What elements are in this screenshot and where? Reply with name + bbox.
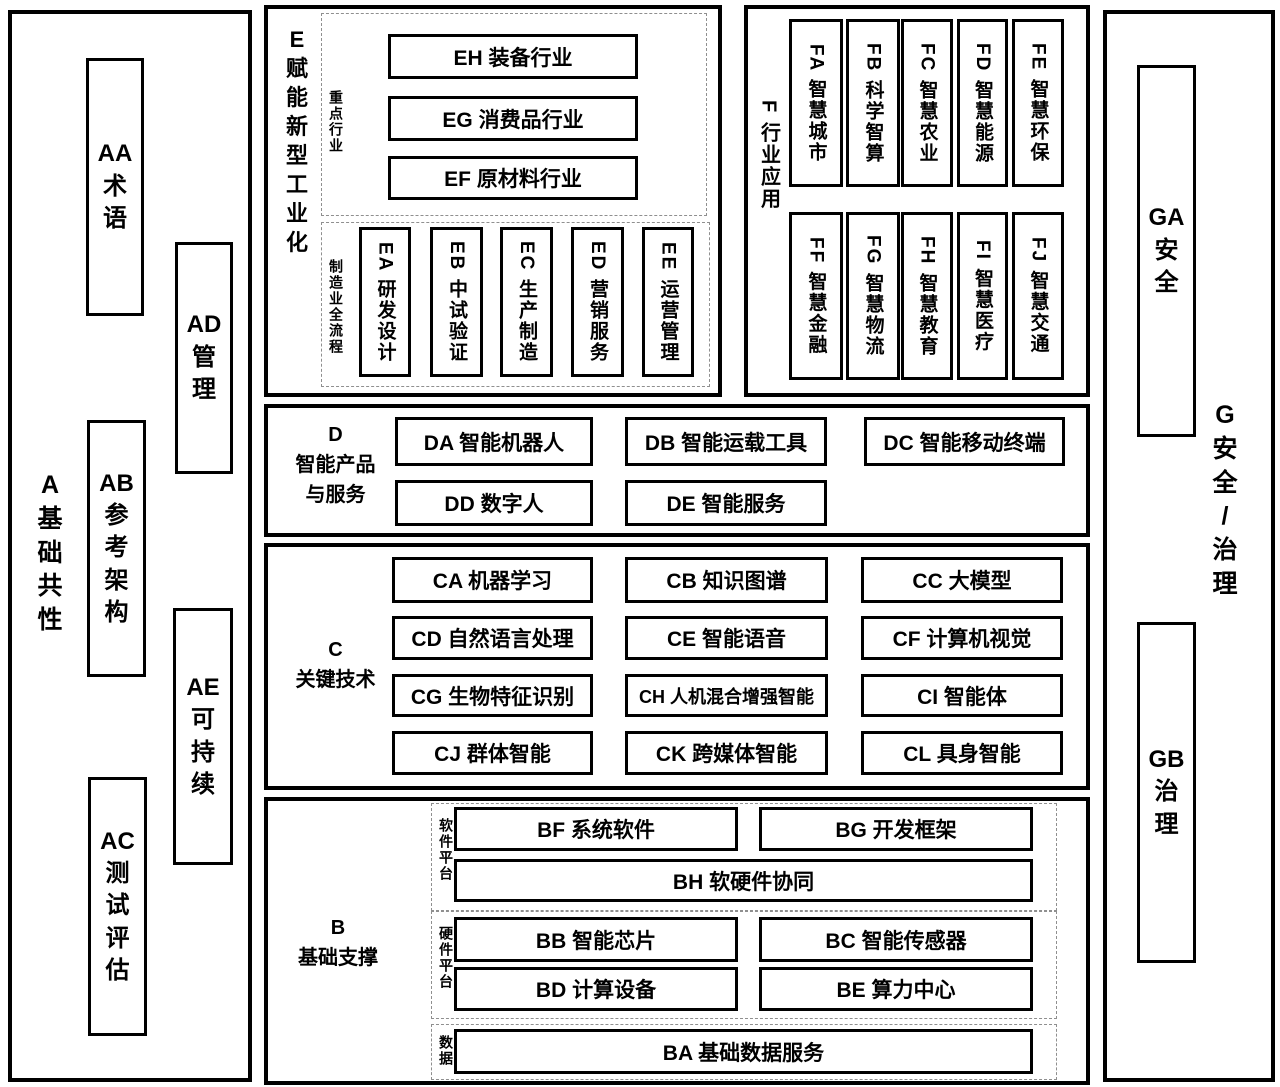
box-ee-operations-management: EE 运营管理 [642, 227, 694, 377]
box-bb-intelligent-chip: BB 智能芯片 [454, 917, 738, 962]
section-a-label: A 基 础 共 性 [20, 469, 80, 638]
group-software-platform: 软件平台 BF 系统软件 BG 开发框架 BH 软硬件协同 [431, 803, 1057, 911]
box-eg-consumer-goods-industry: EG 消费品行业 [388, 96, 638, 141]
box-gb-governance: GB 治 理 [1137, 622, 1196, 963]
section-f-label: F 行业应用 [755, 100, 783, 300]
box-cl-embodied-intelligence: CL 具身智能 [861, 731, 1063, 775]
section-a-basic-common: A 基 础 共 性 AA 术 语 AD 管 理 AB 参 考 架 构 AE 可 … [8, 10, 252, 1082]
box-bh-software-hardware-collaboration: BH 软硬件协同 [454, 859, 1033, 902]
box-be-computing-center: BE 算力中心 [759, 967, 1033, 1011]
box-cc-large-model: CC 大模型 [861, 557, 1063, 603]
group-manufacturing-chain-label: 制造业全流程 [325, 259, 347, 369]
box-fd-smart-energy: FD 智慧能源 [957, 19, 1008, 187]
box-dc-intelligent-mobile-terminal: DC 智能移动终端 [864, 417, 1065, 466]
box-ba-basic-data-services: BA 基础数据服务 [454, 1029, 1033, 1074]
section-g-security-governance: GA 安 全 G 安 全 / 治 理 GB 治 理 [1103, 10, 1275, 1082]
box-cd-nlp: CD 自然语言处理 [392, 616, 593, 660]
box-fh-smart-education: FH 智慧教育 [901, 212, 953, 380]
box-ch-human-machine-hybrid-augmented-intelligence: CH 人机混合增强智能 [625, 674, 828, 717]
box-ea-rd-design: EA 研发设计 [359, 227, 411, 377]
box-ac-testing-evaluation: AC 测 试 评 估 [88, 777, 147, 1036]
section-d-intelligent-products-services: D 智能产品 与服务 DA 智能机器人 DB 智能运载工具 DC 智能移动终端 … [264, 404, 1090, 537]
box-fi-smart-healthcare: FI 智慧医疗 [957, 212, 1008, 380]
box-db-intelligent-vehicles: DB 智能运载工具 [625, 417, 827, 466]
box-cj-swarm-intelligence: CJ 群体智能 [392, 731, 593, 775]
section-c-label: C 关键技术 [278, 635, 393, 695]
box-da-intelligent-robot: DA 智能机器人 [395, 417, 593, 466]
section-b-basic-support: B 基础支撑 软件平台 BF 系统软件 BG 开发框架 BH 软硬件协同 硬件平… [264, 797, 1090, 1085]
section-e-label: E 赋 能 新 型 工 业 化 [274, 25, 320, 257]
group-key-industries: 重点行业 EH 装备行业 EG 消费品行业 EF 原材料行业 [321, 13, 707, 216]
box-ad-management: AD 管 理 [175, 242, 233, 474]
section-e-empowering-new-industrialization: E 赋 能 新 型 工 业 化 重点行业 EH 装备行业 EG 消费品行业 EF… [264, 5, 722, 397]
box-bf-system-software: BF 系统软件 [454, 807, 738, 851]
box-fj-smart-transportation: FJ 智慧交通 [1012, 212, 1064, 380]
group-manufacturing-chain: 制造业全流程 EA 研发设计 EB 中试验证 EC 生产制造 ED 营销服务 E… [321, 222, 710, 387]
box-ga-security: GA 安 全 [1137, 65, 1196, 437]
box-ed-marketing-services: ED 营销服务 [571, 227, 624, 377]
group-key-industries-label: 重点行业 [325, 90, 347, 210]
box-de-intelligent-services: DE 智能服务 [625, 480, 827, 526]
box-dd-digital-human: DD 数字人 [395, 480, 593, 526]
box-ec-production-manufacturing: EC 生产制造 [500, 227, 553, 377]
box-ff-smart-finance: FF 智慧金融 [789, 212, 843, 380]
section-g-label: G 安 全 / 治 理 [1199, 399, 1251, 602]
box-eh-equipment-industry: EH 装备行业 [388, 34, 638, 79]
group-software-platform-label: 软件平台 [436, 818, 456, 898]
box-ef-raw-materials-industry: EF 原材料行业 [388, 156, 638, 200]
section-f-industry-applications: F 行业应用 FA 智慧城市 FB 科学智算 FC 智慧农业 FD 智慧能源 F… [744, 5, 1090, 397]
box-cb-knowledge-graph: CB 知识图谱 [625, 557, 828, 603]
box-ca-machine-learning: CA 机器学习 [392, 557, 593, 603]
box-ae-sustainability: AE 可 持 续 [173, 608, 233, 865]
group-hardware-platform: 硬件平台 BB 智能芯片 BC 智能传感器 BD 计算设备 BE 算力中心 [431, 911, 1057, 1019]
box-bg-development-framework: BG 开发框架 [759, 807, 1033, 851]
box-bc-intelligent-sensor: BC 智能传感器 [759, 917, 1033, 962]
box-fb-scientific-computing: FB 科学智算 [846, 19, 900, 187]
group-data: 数据 BA 基础数据服务 [431, 1024, 1057, 1080]
box-fc-smart-agriculture: FC 智慧农业 [901, 19, 953, 187]
box-ce-intelligent-speech: CE 智能语音 [625, 616, 828, 660]
box-ab-reference-architecture: AB 参 考 架 构 [87, 420, 146, 677]
box-ci-intelligent-agent: CI 智能体 [861, 674, 1063, 717]
box-aa-terminology: AA 术 语 [86, 58, 144, 316]
box-fa-smart-city: FA 智慧城市 [789, 19, 843, 187]
box-cf-computer-vision: CF 计算机视觉 [861, 616, 1063, 660]
box-bd-computing-equipment: BD 计算设备 [454, 967, 738, 1011]
box-cg-biometric-recognition: CG 生物特征识别 [392, 674, 593, 717]
box-fe-smart-environment: FE 智慧环保 [1012, 19, 1064, 187]
box-ck-cross-media-intelligence: CK 跨媒体智能 [625, 731, 828, 775]
section-b-label: B 基础支撑 [283, 913, 393, 973]
box-fg-smart-logistics: FG 智慧物流 [846, 212, 900, 380]
section-d-label: D 智能产品 与服务 [278, 420, 393, 510]
group-data-label: 数据 [436, 1035, 456, 1071]
group-hardware-platform-label: 硬件平台 [436, 926, 456, 1006]
section-c-key-technologies: C 关键技术 CA 机器学习 CB 知识图谱 CC 大模型 CD 自然语言处理 … [264, 543, 1090, 790]
box-eb-pilot-verification: EB 中试验证 [430, 227, 483, 377]
